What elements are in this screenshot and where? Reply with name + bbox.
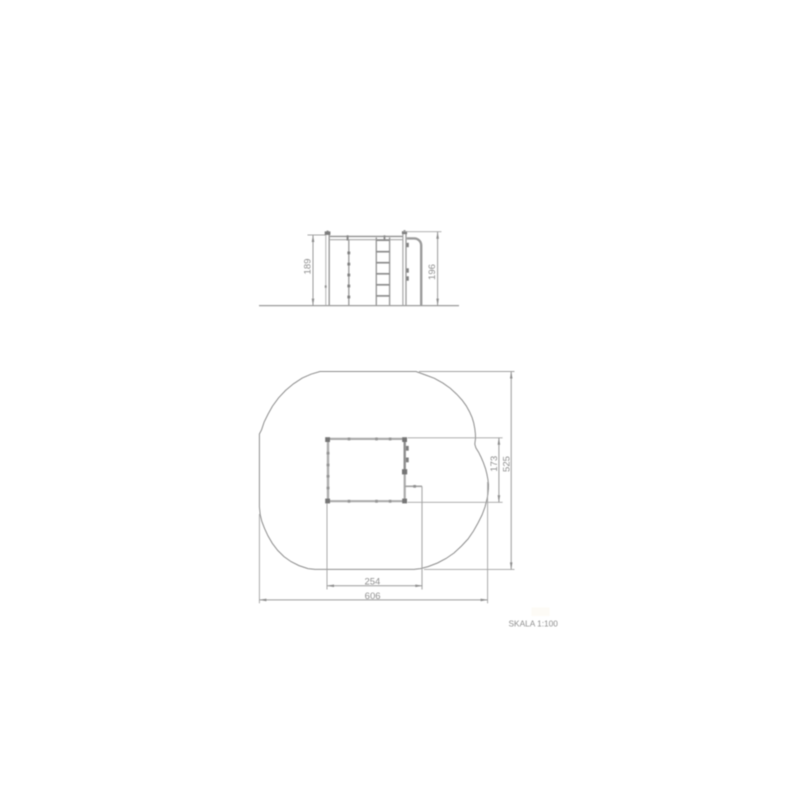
svg-text:525: 525	[502, 456, 513, 472]
svg-text:189: 189	[303, 258, 314, 274]
svg-text:606: 606	[365, 591, 381, 602]
svg-text:173: 173	[489, 456, 500, 472]
svg-text:SKALA 1:100: SKALA 1:100	[509, 619, 559, 629]
svg-text:196: 196	[427, 264, 438, 280]
svg-text:254: 254	[364, 576, 380, 587]
